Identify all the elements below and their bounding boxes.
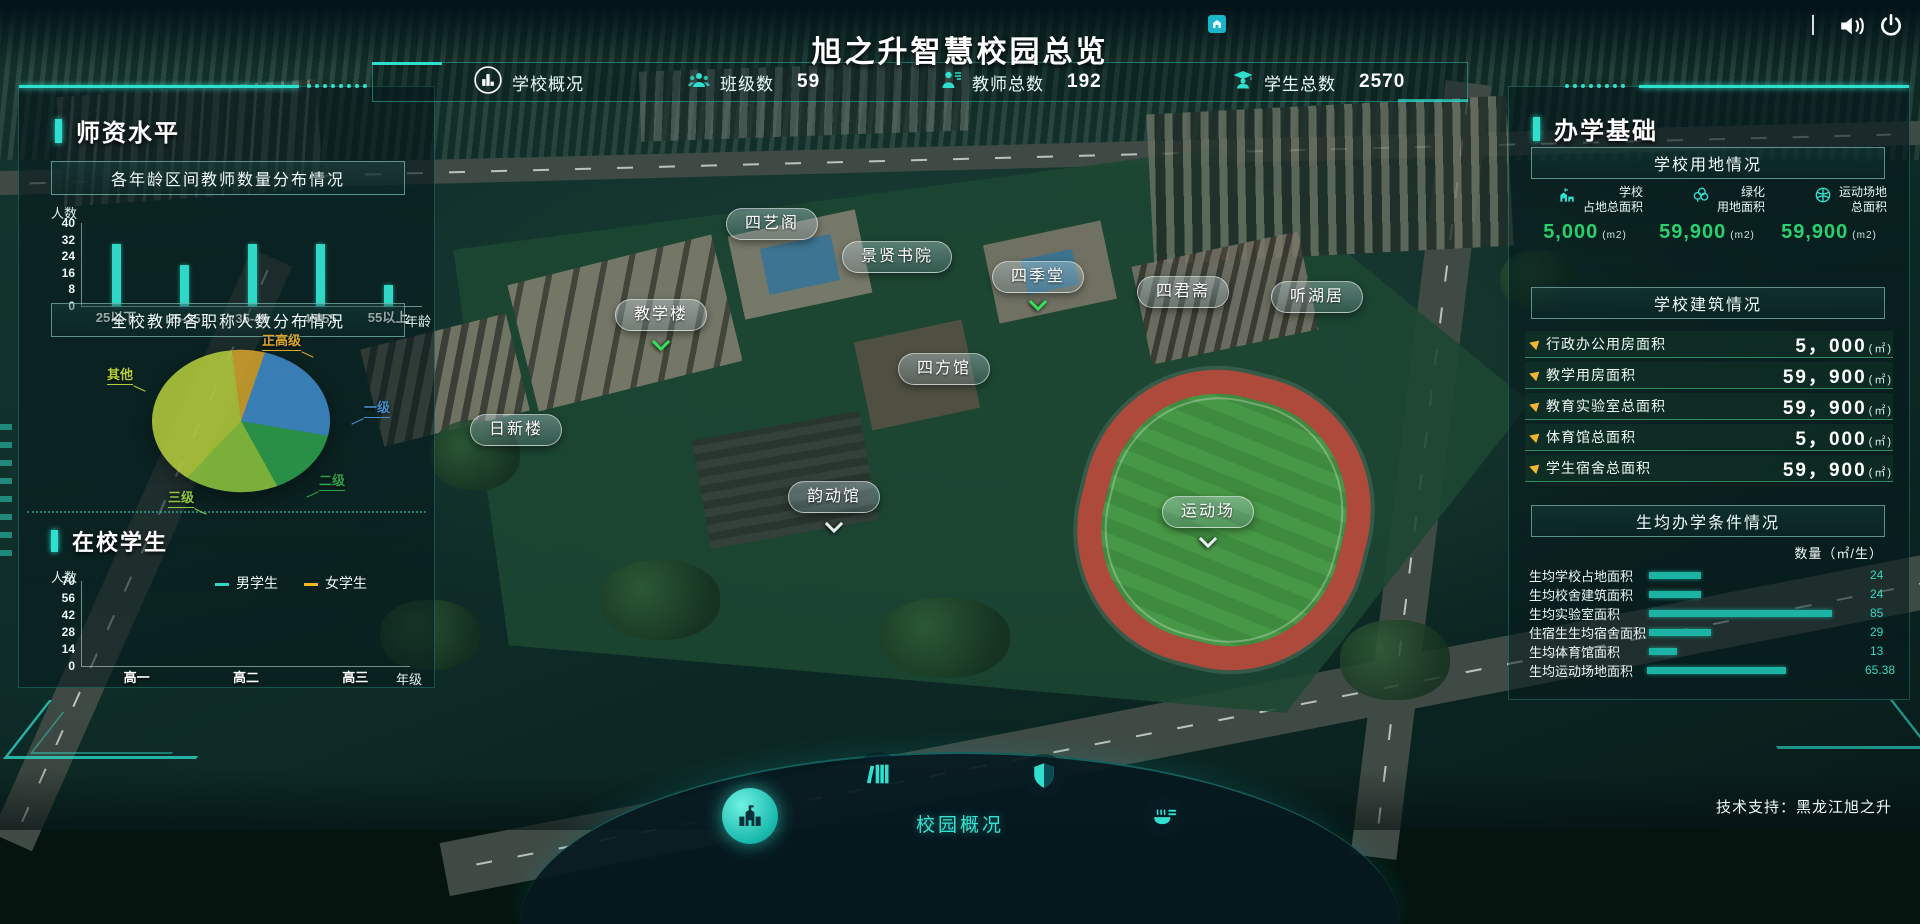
class-count-value: 59 xyxy=(797,71,820,93)
campus-switch-icon[interactable] xyxy=(1205,12,1229,36)
teacher-rank-pie xyxy=(143,343,339,500)
school-overview-icon xyxy=(473,65,503,100)
section-separator xyxy=(27,511,426,513)
class-count-item: 班级数 59 xyxy=(687,63,820,101)
land-unit: (m2) xyxy=(1730,230,1755,241)
y-tick-label: 14 xyxy=(62,642,75,656)
row-marker-icon xyxy=(1528,369,1540,381)
trees xyxy=(1340,620,1450,700)
per-student-row: 生均学校占地面积 24 xyxy=(1529,567,1895,583)
map-label-yundongchang[interactable]: 运动场 xyxy=(1162,496,1254,528)
x-axis-label: 年龄 xyxy=(405,311,431,330)
y-tick-label: 24 xyxy=(62,249,75,263)
y-tick-label: 56 xyxy=(62,591,75,605)
trees xyxy=(880,598,1010,678)
land-stat-greening: 绿化用地面积 59,900(m2) xyxy=(1649,185,1765,244)
bottom-nav-label[interactable]: 校园概况 xyxy=(916,810,1004,837)
map-label-yundongguan[interactable]: 韵动馆 xyxy=(788,481,880,513)
map-label-sijunzhai[interactable]: 四君斋 xyxy=(1137,276,1229,308)
map-label-rixinlou[interactable]: 日新楼 xyxy=(470,414,562,446)
hbar-label: 生均学校占地面积 xyxy=(1529,566,1649,585)
y-tick-label: 16 xyxy=(62,266,75,280)
school-area-icon xyxy=(1557,185,1577,210)
hbar-track xyxy=(1649,572,1864,579)
bar xyxy=(180,265,189,307)
land-unit: (m2) xyxy=(1852,230,1877,241)
nav-security-button[interactable] xyxy=(1022,754,1066,798)
section-header-students: 在校学生 xyxy=(51,525,168,557)
panel-frame-line xyxy=(1639,85,1909,88)
building-row: 体育馆总面积 5，000(㎡) xyxy=(1525,424,1893,451)
hbar-label: 生均实验室面积 xyxy=(1529,604,1649,623)
building-row-value: 59，900 xyxy=(1783,460,1867,481)
building-row-label: 学生宿舍总面积 xyxy=(1546,458,1651,478)
teacher-count-value: 192 xyxy=(1067,71,1102,93)
bar-column: 高一 xyxy=(82,581,191,666)
building-row: 教学用房面积 59，900(㎡) xyxy=(1525,362,1893,389)
building-row: 学生宿舍总面积 59，900(㎡) xyxy=(1525,455,1893,482)
x-axis-label: 年级 xyxy=(396,669,422,688)
hbar-value: 85 xyxy=(1870,606,1883,620)
building-row-value: 59，900 xyxy=(1783,398,1867,419)
section-title: 在校学生 xyxy=(72,525,168,557)
header-divider xyxy=(1812,15,1814,35)
hbar-track xyxy=(1649,610,1864,617)
pie-label-level2: 二级 xyxy=(319,470,345,491)
student-count-label: 学生总数 xyxy=(1264,70,1336,95)
school-overview-label: 学校概况 xyxy=(512,70,584,95)
pie-label-other: 其他 xyxy=(107,364,133,385)
per-student-unit-label: 数量（㎡/生） xyxy=(1794,543,1883,562)
nav-library-button[interactable] xyxy=(856,752,900,796)
section-title: 办学基础 xyxy=(1554,111,1658,146)
student-icon xyxy=(1231,68,1255,97)
bar-column: 45-55 xyxy=(286,223,354,306)
bar-column: 高二 xyxy=(191,581,300,666)
section-title: 师资水平 xyxy=(76,113,180,148)
pie-label-senior: 正高级 xyxy=(262,330,301,351)
land-label-line1: 绿化 xyxy=(1741,185,1765,199)
category-label: 高三 xyxy=(342,667,368,686)
page-title: 旭之升智慧校园总览 xyxy=(812,27,1109,71)
hbar xyxy=(1649,591,1701,598)
land-unit: (m2) xyxy=(1602,230,1627,241)
hbar-track xyxy=(1647,667,1859,674)
land-label-line1: 学校 xyxy=(1619,185,1643,199)
per-student-row: 生均运动场地面积 65.38 xyxy=(1529,662,1895,678)
sports-ground-icon xyxy=(1813,185,1833,210)
speaker-icon[interactable] xyxy=(1838,13,1868,39)
building-row: 行政办公用房面积 5，000(㎡) xyxy=(1525,331,1893,358)
hbar xyxy=(1649,648,1677,655)
building-row-label: 教学用房面积 xyxy=(1546,365,1636,385)
power-icon[interactable] xyxy=(1878,12,1904,38)
hbar-track xyxy=(1649,648,1864,655)
hbar-track xyxy=(1649,629,1864,636)
per-student-title: 生均办学条件情况 xyxy=(1531,505,1885,537)
land-label-line2: 用地面积 xyxy=(1717,200,1765,214)
map-label-jiaoxuelou[interactable]: 教学楼 xyxy=(615,299,707,331)
y-tick-label: 42 xyxy=(62,608,75,622)
building-row: 教育实验室总面积 59，900(㎡) xyxy=(1525,393,1893,420)
hbar-value: 65.38 xyxy=(1865,663,1895,677)
hbar-label: 生均运动场地面积 xyxy=(1529,661,1647,680)
pie-label-level3: 三级 xyxy=(168,487,194,508)
row-marker-icon xyxy=(1528,400,1540,412)
y-axis-ticks: 01428425670 xyxy=(49,581,79,666)
panel-frame-line xyxy=(19,85,299,88)
teacher-panel: 师资水平 各年龄区间教师数量分布情况 人数 0816243240 25以下25-… xyxy=(18,86,435,688)
student-count-value: 2570 xyxy=(1359,71,1405,93)
hbar xyxy=(1649,610,1832,617)
section-tick xyxy=(1533,117,1540,141)
land-stat-sports-ground: 运动场地总面积 59,900(m2) xyxy=(1771,185,1887,244)
y-axis-ticks: 0816243240 xyxy=(49,223,79,306)
bar-plot: 25以下25-3535-4545-5555以上 xyxy=(81,223,422,307)
pie-label-level1: 一级 xyxy=(364,397,390,418)
category-label: 高二 xyxy=(233,667,259,686)
apartment-block xyxy=(1146,96,1513,265)
hbar xyxy=(1649,572,1701,579)
trees xyxy=(600,560,720,640)
age-chart-title: 各年龄区间教师数量分布情况 xyxy=(51,161,405,195)
bar xyxy=(316,244,325,306)
row-marker-icon xyxy=(1528,462,1540,474)
row-marker-icon xyxy=(1528,431,1540,443)
land-label-line2: 总面积 xyxy=(1851,200,1887,214)
hbar-value: 13 xyxy=(1870,644,1883,658)
per-student-row: 住宿生生均宿舍面积 29 xyxy=(1529,624,1895,640)
hbar-label: 生均校舍建筑面积 xyxy=(1529,585,1649,604)
hbar-value: 29 xyxy=(1870,625,1883,639)
building-row-value: 59，900 xyxy=(1783,367,1867,388)
building-row-label: 行政办公用房面积 xyxy=(1546,334,1666,354)
school-overview-item: 学校概况 xyxy=(473,63,584,101)
hbar xyxy=(1649,629,1711,636)
panel-frame-dots xyxy=(1565,84,1625,88)
security-icon xyxy=(1022,754,1066,798)
section-tick xyxy=(51,530,58,552)
per-student-row: 生均体育馆面积 13 xyxy=(1529,643,1895,659)
class-count-label: 班级数 xyxy=(720,70,774,95)
canteen-icon xyxy=(1144,796,1184,836)
land-title: 学校用地情况 xyxy=(1531,147,1885,179)
y-tick-label: 40 xyxy=(62,216,75,230)
category-label: 高一 xyxy=(124,667,150,686)
y-tick-label: 70 xyxy=(62,574,75,588)
hbar-label: 生均体育馆面积 xyxy=(1529,642,1649,661)
nav-canteen-button[interactable] xyxy=(1144,796,1184,836)
section-header-basics: 办学基础 xyxy=(1533,111,1658,146)
library-icon xyxy=(856,752,900,796)
map-label-sijitang[interactable]: 四季堂 xyxy=(992,261,1084,293)
map-label-jingxian-shuyuan[interactable]: 景贤书院 xyxy=(842,241,952,273)
tech-support-text: 技术支持：黑龙江旭之升 xyxy=(1716,796,1892,817)
greening-icon xyxy=(1691,185,1711,210)
y-tick-label: 8 xyxy=(68,282,75,296)
school-basics-panel: 办学基础 学校用地情况 学校占地总面积 5,000(m2) 绿化用地面积 59,… xyxy=(1508,86,1910,700)
land-label-line1: 运动场地 xyxy=(1839,185,1887,199)
building-row-label: 教育实验室总面积 xyxy=(1546,396,1666,416)
land-label-line2: 占地总面积 xyxy=(1583,200,1643,214)
student-bar-chart: 人数 01428425670 高一高二高三 年级 xyxy=(49,569,414,687)
bar xyxy=(248,244,257,306)
building-row-label: 体育馆总面积 xyxy=(1546,427,1636,447)
map-label-siyige[interactable]: 四艺阁 xyxy=(726,208,818,240)
bar xyxy=(112,244,121,306)
hbar-track xyxy=(1649,591,1864,598)
nav-campus-overview-button[interactable] xyxy=(722,788,778,844)
teacher-count-label: 教师总数 xyxy=(972,70,1044,95)
hbar-label: 住宿生生均宿舍面积 xyxy=(1529,623,1649,642)
section-tick xyxy=(55,119,62,143)
land-value: 59,900 xyxy=(1659,221,1726,243)
class-group-icon xyxy=(687,68,711,97)
per-student-row: 生均校舍建筑面积 24 xyxy=(1529,586,1895,602)
bar-plot: 高一高二高三 xyxy=(81,581,410,667)
building-title: 学校建筑情况 xyxy=(1531,287,1885,319)
hbar-value: 24 xyxy=(1870,568,1883,582)
row-marker-icon xyxy=(1528,338,1540,350)
map-label-sifangguan[interactable]: 四方馆 xyxy=(898,353,990,385)
bar-column: 35-45 xyxy=(218,223,286,306)
y-tick-label: 0 xyxy=(68,659,75,673)
bar-column: 高三 xyxy=(301,581,410,666)
y-tick-label: 32 xyxy=(62,233,75,247)
land-value: 5,000 xyxy=(1543,221,1598,243)
per-student-row: 生均实验室面积 85 xyxy=(1529,605,1895,621)
y-tick-label: 28 xyxy=(62,625,75,639)
hud-ticks xyxy=(0,424,12,564)
panel-frame-dots xyxy=(307,84,367,88)
building-row-value: 5，000 xyxy=(1795,429,1866,450)
land-value: 59,900 xyxy=(1781,221,1848,243)
rank-chart-title: 全校教师各职称人数分布情况 xyxy=(51,303,405,337)
teacher-icon xyxy=(939,68,963,97)
hbar-value: 24 xyxy=(1870,587,1883,601)
bar-column: 25-35 xyxy=(150,223,218,306)
hbar xyxy=(1647,667,1785,674)
bar-column: 25以下 xyxy=(82,223,150,306)
section-header-teachers: 师资水平 xyxy=(55,113,180,148)
building-row-value: 5，000 xyxy=(1795,336,1866,357)
student-count-item: 学生总数 2570 xyxy=(1231,63,1405,101)
map-label-tinghuju[interactable]: 听湖居 xyxy=(1271,281,1363,313)
bar-column: 55以上 xyxy=(354,223,422,306)
land-stat-school-area: 学校占地总面积 5,000(m2) xyxy=(1527,185,1643,244)
